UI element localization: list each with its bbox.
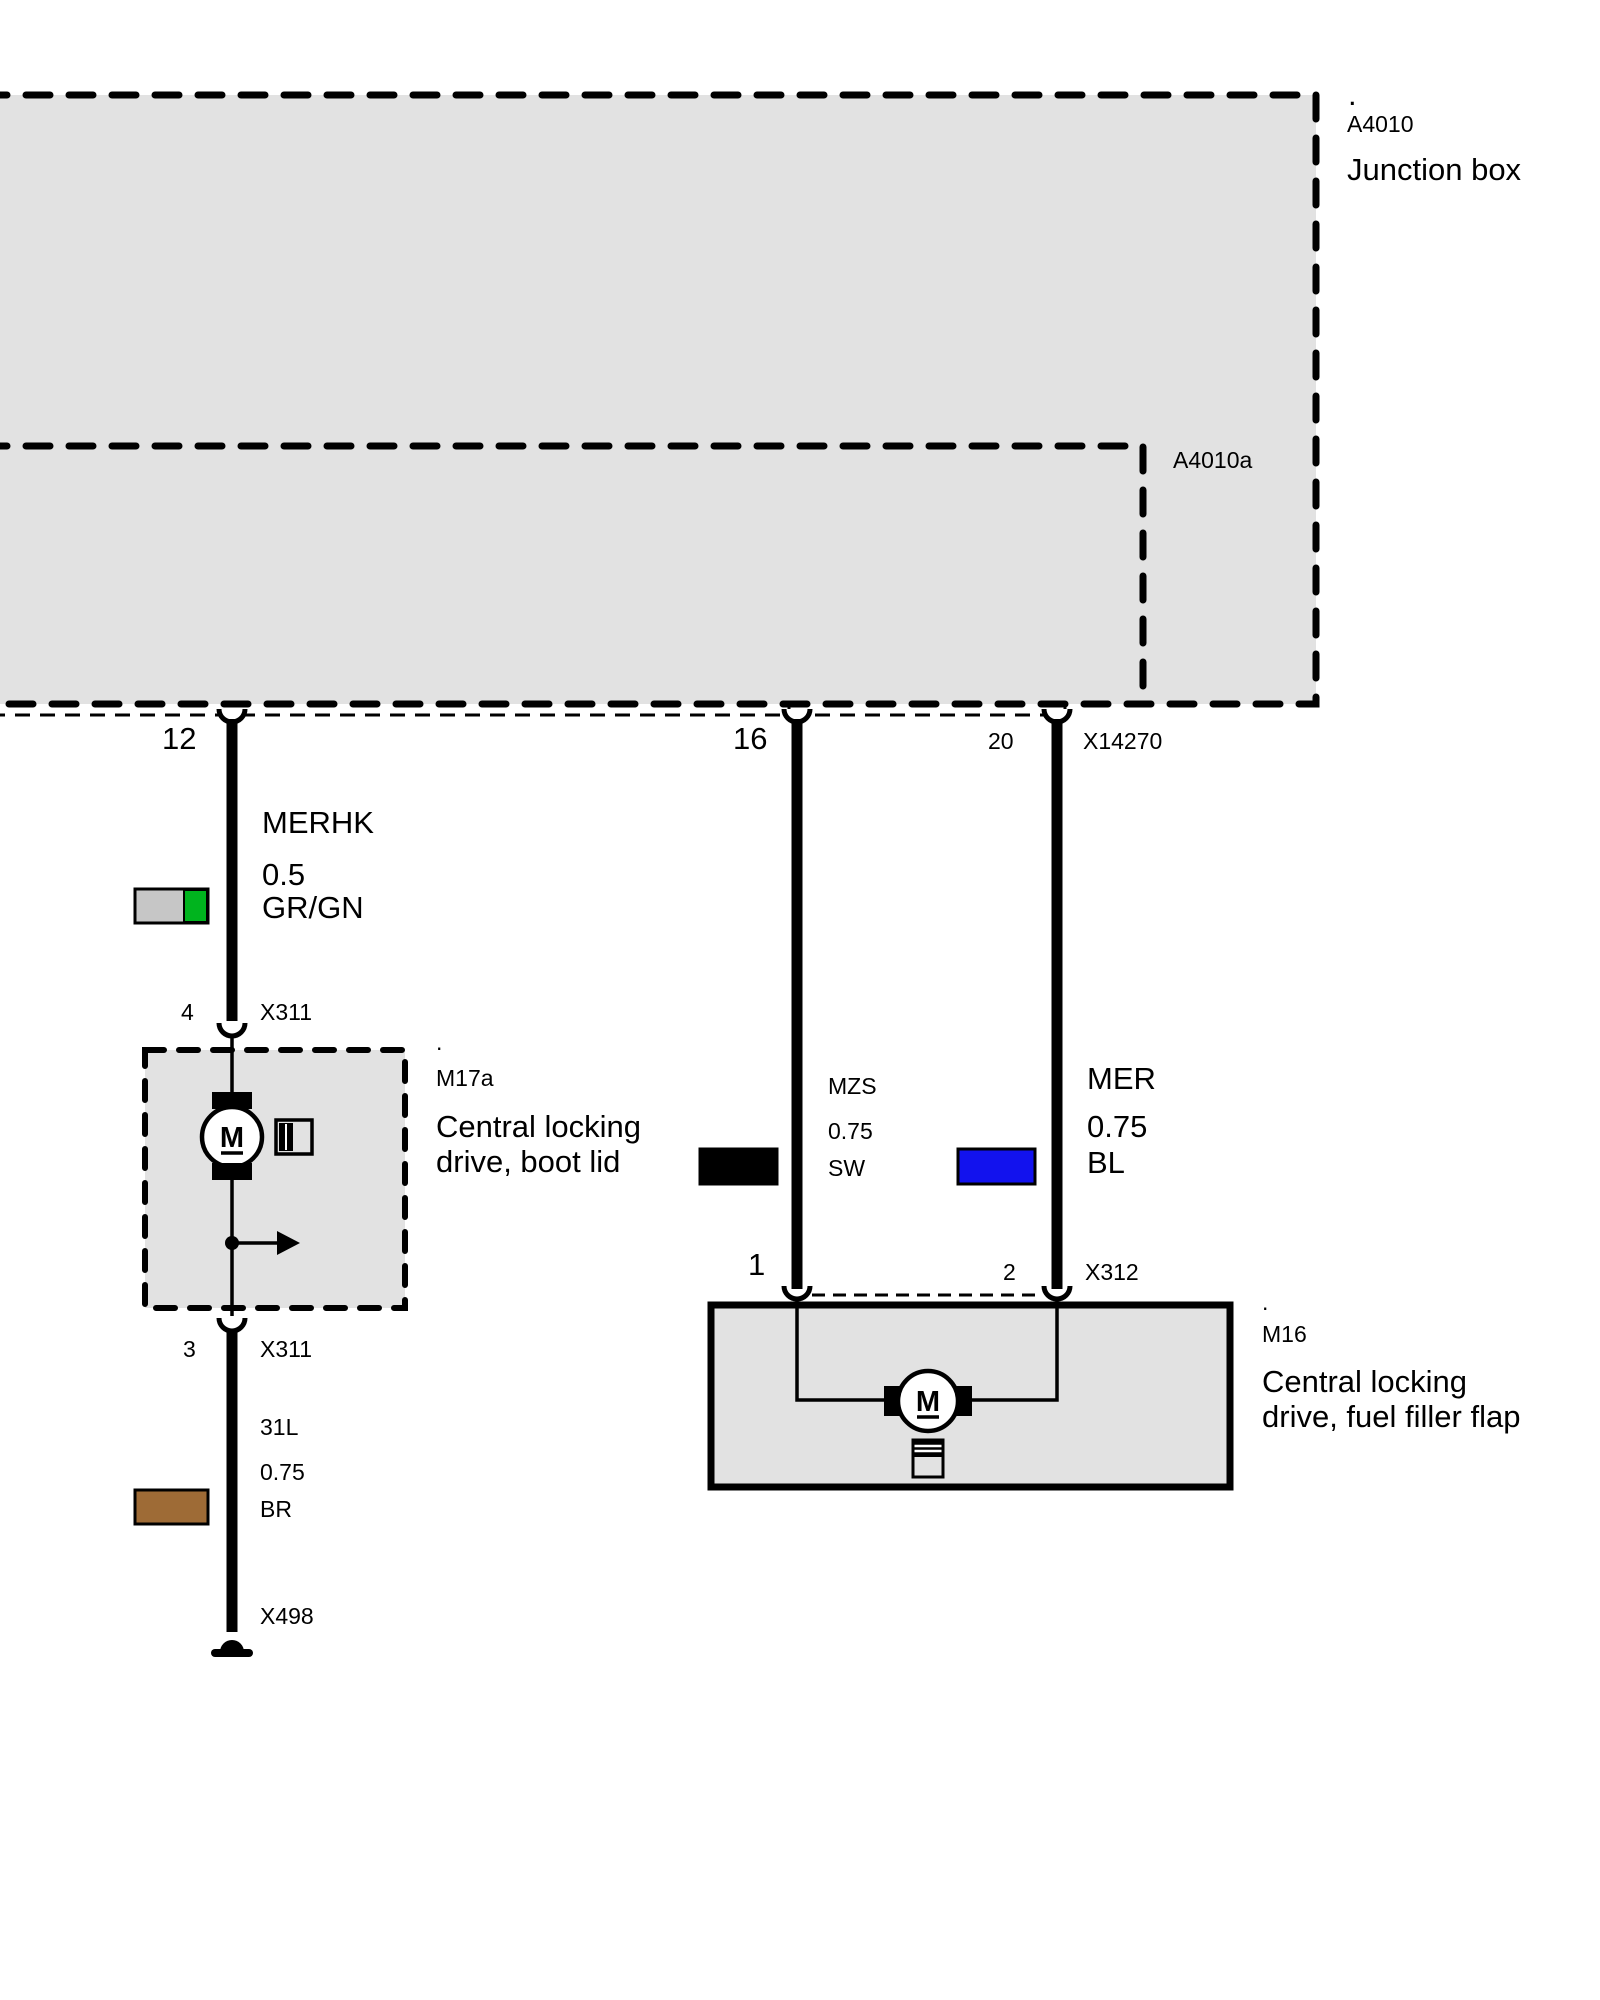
a4010-ref: A4010: [1347, 112, 1414, 138]
pin-3-label: 3: [183, 1337, 196, 1363]
m17a-ref: M17a: [436, 1066, 494, 1092]
swatch-gr-gn-green: [184, 890, 207, 922]
swatch-sw: [700, 1149, 777, 1184]
wire-mzs-gauge: 0.75: [828, 1119, 873, 1145]
junction-box-label: Junction box: [1347, 153, 1521, 188]
connector-x14270-label: X14270: [1083, 729, 1162, 755]
m16-lock-icon-top: [913, 1440, 943, 1457]
m17a-label-line1: Central locking: [436, 1110, 641, 1145]
m17a-ref-dot: .: [436, 1030, 442, 1056]
socket-pin-4-icon: [219, 1023, 245, 1036]
m16-ref-dot: .: [1262, 1290, 1268, 1316]
wire-mer-gauge: 0.75: [1087, 1110, 1147, 1145]
pin-1-label: 1: [748, 1248, 765, 1283]
pin-12-label: 12: [162, 722, 196, 757]
m17a-label-line2: drive, boot lid: [436, 1145, 620, 1180]
wire-merhk-color: GR/GN: [262, 891, 364, 926]
swatch-br: [135, 1490, 208, 1524]
wiring-diagram-page: M M: [0, 0, 1600, 2000]
m17a-motor-terminal-bottom: [212, 1163, 252, 1180]
connector-x312-label: X312: [1085, 1260, 1139, 1286]
m16-motor-letter: M: [916, 1386, 940, 1418]
wire-mzs-color: SW: [828, 1156, 865, 1182]
a4010a-ref: A4010a: [1173, 448, 1252, 474]
connector-x498-label: X498: [260, 1604, 314, 1630]
wire-mzs-name: MZS: [828, 1074, 877, 1100]
pin-2-label: 2: [1003, 1260, 1016, 1286]
connector-x311-top-label: X311: [260, 1000, 312, 1026]
m17a-motor-letter: M: [220, 1122, 244, 1154]
wire-mer-name: MER: [1087, 1062, 1156, 1097]
wiring-diagram-canvas: M M: [0, 0, 1600, 2000]
pin-4-label: 4: [181, 1000, 194, 1026]
wire-merhk-name: MERHK: [262, 806, 374, 841]
wire-merhk-gauge: 0.5: [262, 858, 305, 893]
m16-label-line1: Central locking: [1262, 1365, 1467, 1400]
ground-symbol-x498: [211, 1640, 253, 1657]
wire-31l-name: 31L: [260, 1415, 298, 1441]
wire-mer-color: BL: [1087, 1146, 1125, 1181]
pin-20-label: 20: [988, 729, 1014, 755]
a4010-ref-dot: .: [1348, 78, 1357, 113]
socket-pin-3-icon: [219, 1318, 245, 1331]
m16-ref: M16: [1262, 1322, 1307, 1348]
connector-x311-bottom-label: X311: [260, 1337, 312, 1363]
ground-bar-icon: [211, 1649, 253, 1657]
wire-31l-gauge: 0.75: [260, 1460, 305, 1486]
junction-box-outline: [0, 95, 1316, 704]
swatch-bl: [958, 1149, 1035, 1184]
m17a-box-outline: [145, 1050, 405, 1308]
wire-31l-color: BR: [260, 1497, 292, 1523]
pin-16-label: 16: [733, 722, 767, 757]
m16-label-line2: drive, fuel filler flap: [1262, 1400, 1520, 1435]
